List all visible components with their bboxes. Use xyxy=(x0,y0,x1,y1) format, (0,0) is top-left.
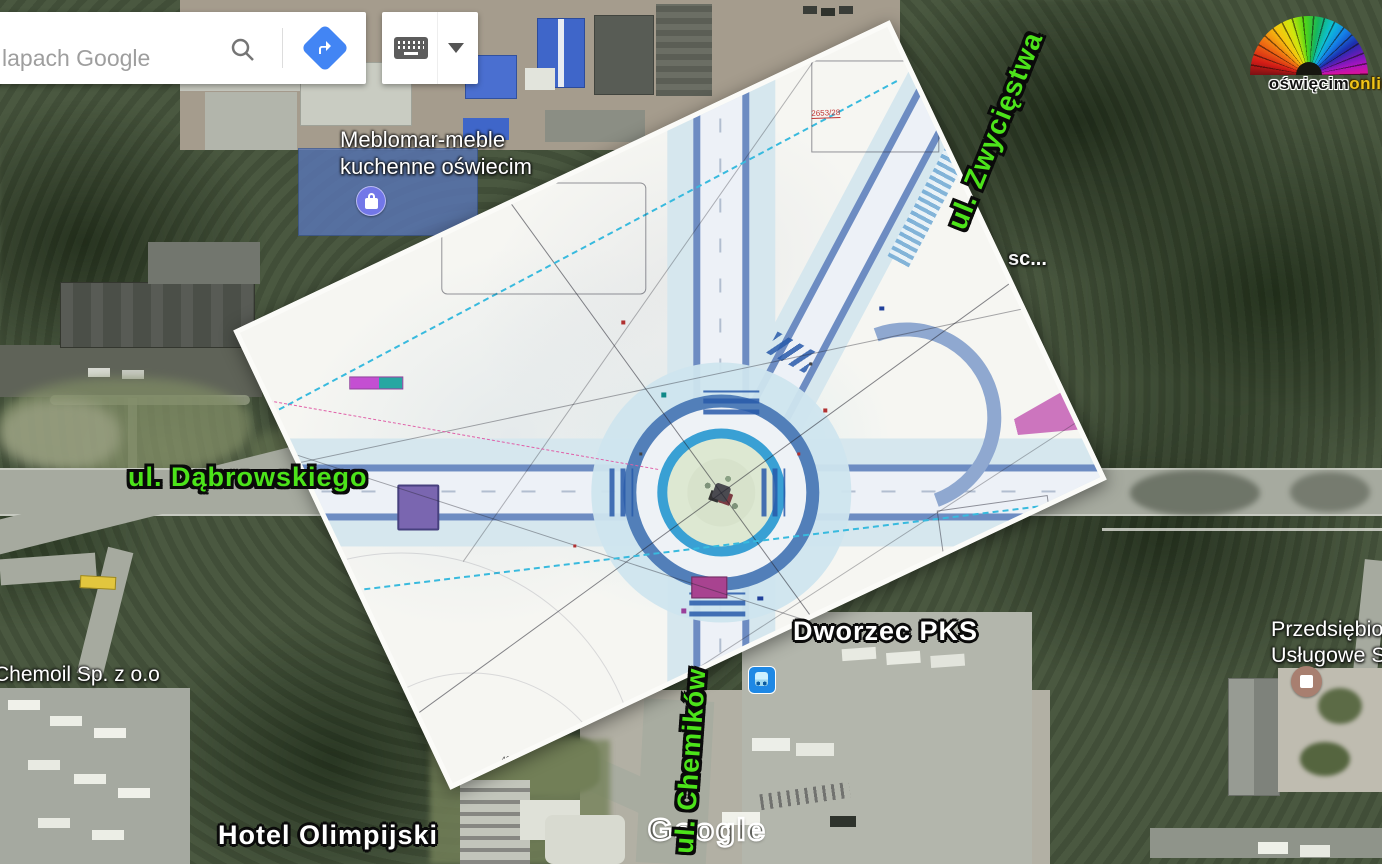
yellow-bus xyxy=(80,575,117,590)
map-decoration xyxy=(1102,528,1382,531)
map-decoration xyxy=(148,242,260,284)
poi-label-meblomar[interactable]: Meblomar-meble kuchenne oświecim xyxy=(340,126,532,180)
map-canvas[interactable]: sc... xyxy=(0,0,1382,864)
poi-label-przedsiebiorstwo[interactable]: Przedsiębio Usługowe S xyxy=(1271,616,1382,668)
map-decoration xyxy=(809,362,812,365)
map-decoration xyxy=(803,6,817,14)
map-decoration xyxy=(830,816,856,827)
map-decoration xyxy=(545,815,625,864)
keyboard-icon[interactable] xyxy=(394,37,428,59)
map-decoration xyxy=(681,608,686,613)
decoration xyxy=(755,672,768,686)
turn-right-arrow-icon xyxy=(313,36,337,60)
decoration xyxy=(233,40,248,55)
search-input[interactable]: lapach Google xyxy=(2,45,150,72)
map-decoration xyxy=(60,282,255,348)
map-decoration xyxy=(761,468,785,516)
map-decoration xyxy=(397,484,439,530)
decoration xyxy=(1300,675,1313,688)
decoration xyxy=(368,193,375,199)
plan-parcel-number: 2653/28 xyxy=(811,108,840,119)
map-decoration xyxy=(573,544,576,547)
logo-name: oświęcim xyxy=(1269,74,1350,93)
left-parking-lot xyxy=(0,688,190,864)
store-icon[interactable] xyxy=(1291,666,1322,697)
google-watermark: Google xyxy=(648,812,767,848)
poi-label-partial[interactable]: sc... xyxy=(1008,248,1047,271)
map-decoration xyxy=(621,320,625,324)
map-decoration xyxy=(1318,688,1362,724)
map-decoration xyxy=(88,368,110,377)
map-decoration xyxy=(1300,742,1350,776)
map-decoration xyxy=(797,452,800,455)
map-decoration xyxy=(1130,470,1260,516)
directions-button[interactable] xyxy=(301,24,349,72)
logo-suffix: online xyxy=(1349,74,1382,94)
bus-icon[interactable] xyxy=(748,666,776,694)
decoration xyxy=(319,41,331,54)
decoration: kuchenne oświecim xyxy=(340,153,532,180)
map-decoration xyxy=(349,376,403,389)
decoration: Meblomar-meble xyxy=(340,126,532,153)
map-decoration xyxy=(609,468,633,516)
decoration xyxy=(246,53,253,60)
map-decoration xyxy=(842,647,877,661)
shopping-bag-icon[interactable] xyxy=(356,186,386,216)
map-decoration xyxy=(639,452,642,455)
decoration: Przedsiębio xyxy=(1271,616,1382,642)
map-decoration xyxy=(691,576,727,598)
map-decoration xyxy=(0,400,120,470)
map-decoration xyxy=(1290,472,1370,512)
map-decoration xyxy=(656,4,712,96)
map-decoration xyxy=(1258,842,1288,854)
map-decoration xyxy=(661,392,666,397)
oswiecimonline-logo: oświęcimonline xyxy=(1236,10,1382,102)
map-decoration xyxy=(703,390,759,414)
search-bar[interactable]: lapach Google xyxy=(0,12,366,84)
search-icon[interactable] xyxy=(228,35,258,65)
decoration: Usługowe S xyxy=(1271,642,1382,668)
poi-label-dworzec-pks: Dworzec PKS xyxy=(793,616,978,647)
map-decoration xyxy=(752,738,790,751)
logo-text: oświęcimonline xyxy=(1236,74,1382,94)
przedsiebiorstwo-building xyxy=(1228,678,1280,796)
map-decoration xyxy=(205,92,297,150)
map-decoration xyxy=(525,68,555,90)
map-decoration xyxy=(823,408,827,412)
chevron-down-icon[interactable] xyxy=(448,43,464,53)
map-decoration xyxy=(879,306,884,310)
decoration xyxy=(365,198,378,209)
keyboard-panel-divider xyxy=(437,12,438,84)
map-decoration xyxy=(545,110,645,142)
street-label-dabrowskiego: ul. Dąbrowskiego xyxy=(128,462,368,493)
poi-label-chemoil[interactable]: Chemoil Sp. z o.o xyxy=(0,663,160,687)
search-divider xyxy=(282,28,283,68)
map-decoration xyxy=(757,596,763,600)
map-decoration xyxy=(594,15,654,95)
keyboard-panel[interactable] xyxy=(382,12,478,84)
map-decoration xyxy=(8,700,40,710)
poi-label-hotel-olimpijski: Hotel Olimpijski xyxy=(218,820,438,851)
